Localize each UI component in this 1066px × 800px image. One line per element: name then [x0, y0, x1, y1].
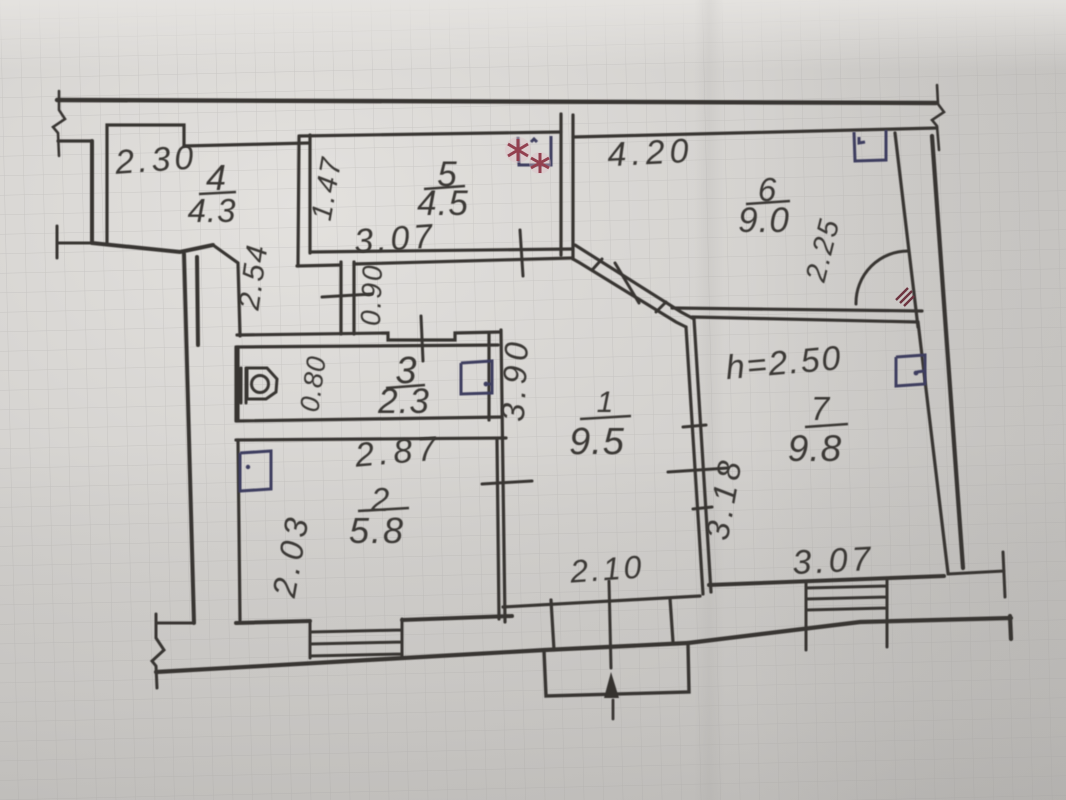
svg-text:3.07: 3.07	[353, 217, 438, 261]
svg-text:4.20: 4.20	[606, 132, 694, 174]
svg-text:4.3: 4.3	[188, 192, 237, 229]
svg-text:2.87: 2.87	[352, 429, 442, 474]
svg-text:9.5: 9.5	[569, 421, 625, 463]
svg-text:9.8: 9.8	[788, 428, 842, 469]
svg-text:5.8: 5.8	[349, 510, 405, 551]
svg-text:2.30: 2.30	[113, 138, 199, 182]
svg-text:7: 7	[811, 390, 831, 427]
svg-text:2.10: 2.10	[568, 548, 646, 589]
svg-text:3.90: 3.90	[494, 336, 535, 422]
svg-text:1: 1	[597, 386, 614, 419]
svg-text:9.0: 9.0	[738, 201, 790, 240]
svg-text:2.3: 2.3	[377, 382, 430, 421]
svg-text:0.90: 0.90	[355, 263, 388, 327]
svg-text:3.07: 3.07	[791, 540, 875, 582]
